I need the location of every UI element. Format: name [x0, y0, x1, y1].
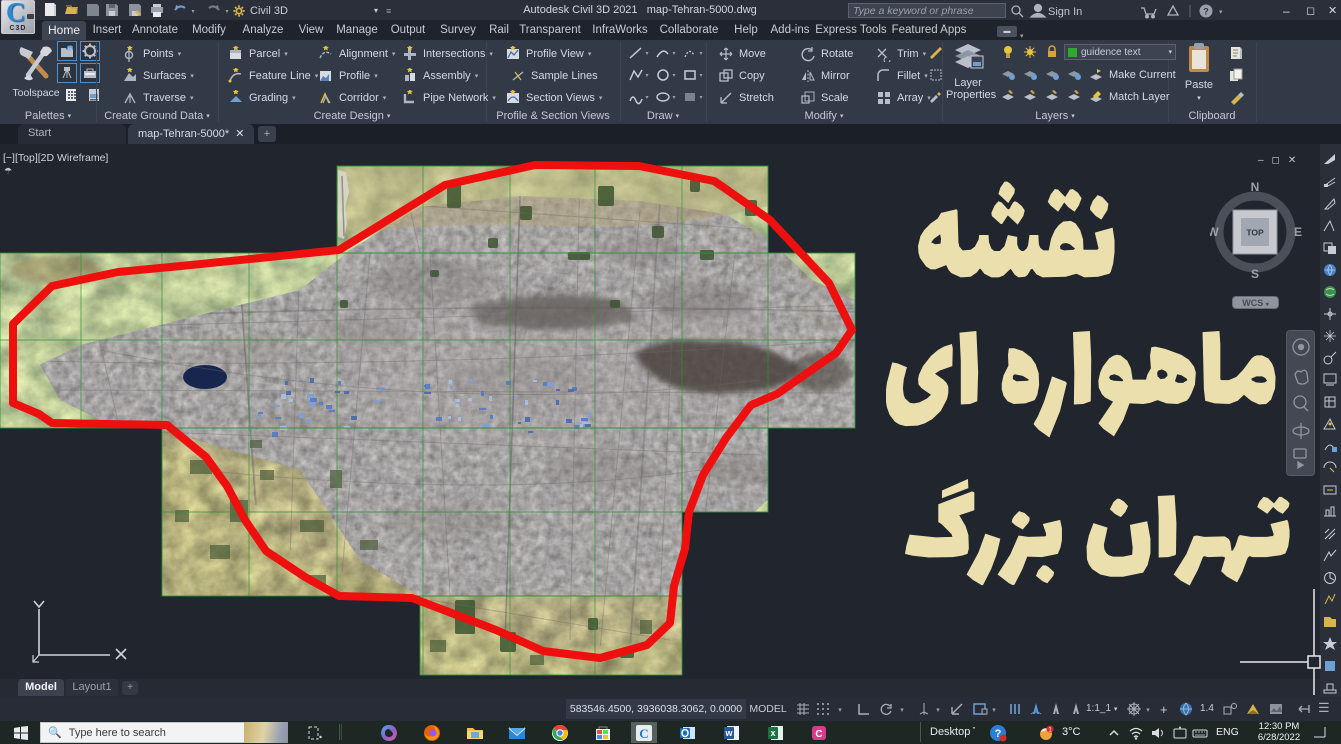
svg-text:C: C: [815, 729, 822, 740]
svg-text:C: C: [639, 726, 648, 741]
svg-text:x: x: [770, 728, 775, 738]
svg-text:w: w: [724, 728, 733, 738]
